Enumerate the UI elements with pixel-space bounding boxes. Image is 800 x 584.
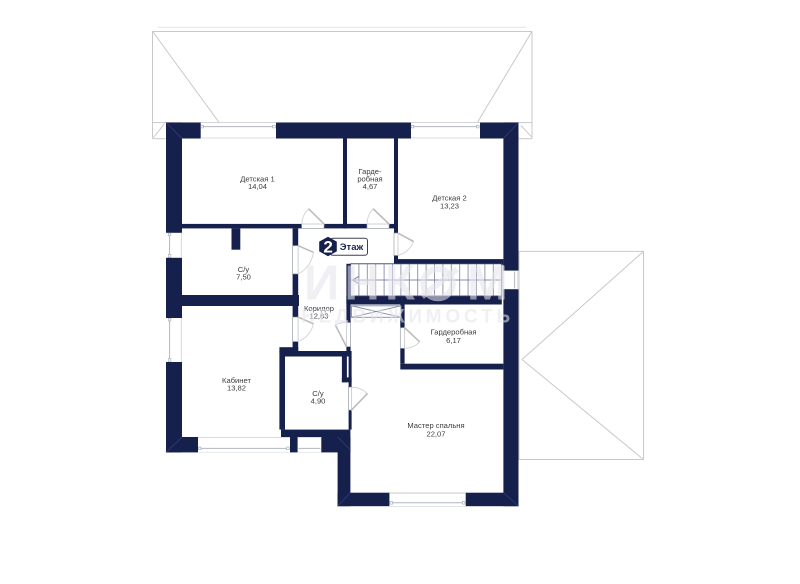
svg-text:М: М (467, 257, 508, 311)
svg-text:2: 2 (323, 238, 332, 257)
svg-text:НЕДВИЖИМОСТЬ: НЕДВИЖИМОСТЬ (301, 306, 514, 327)
svg-text:13,23: 13,23 (440, 202, 459, 211)
svg-text:22,07: 22,07 (426, 430, 445, 439)
svg-text:Этаж: Этаж (340, 242, 364, 253)
svg-text:ИНК: ИНК (304, 257, 420, 311)
svg-text:13,82: 13,82 (227, 384, 246, 393)
svg-text:4,67: 4,67 (363, 182, 378, 191)
svg-text:6,17: 6,17 (446, 336, 461, 345)
svg-text:7,50: 7,50 (236, 273, 251, 282)
svg-text:4,90: 4,90 (311, 397, 326, 406)
svg-text:14,04: 14,04 (248, 182, 267, 191)
